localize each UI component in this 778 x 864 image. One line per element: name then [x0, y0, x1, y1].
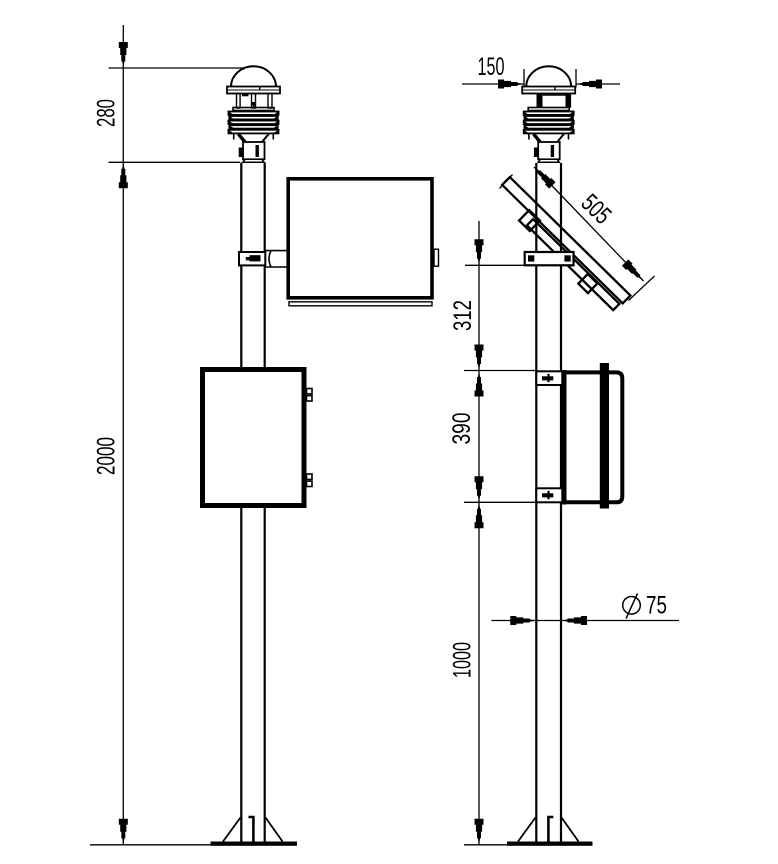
svg-text:75: 75 — [646, 592, 667, 620]
svg-text:312: 312 — [449, 300, 477, 331]
svg-text:2000: 2000 — [93, 437, 121, 475]
svg-text:390: 390 — [448, 413, 476, 445]
svg-text:150: 150 — [478, 53, 505, 81]
svg-text:1000: 1000 — [449, 642, 477, 678]
svg-text:280: 280 — [93, 99, 121, 127]
